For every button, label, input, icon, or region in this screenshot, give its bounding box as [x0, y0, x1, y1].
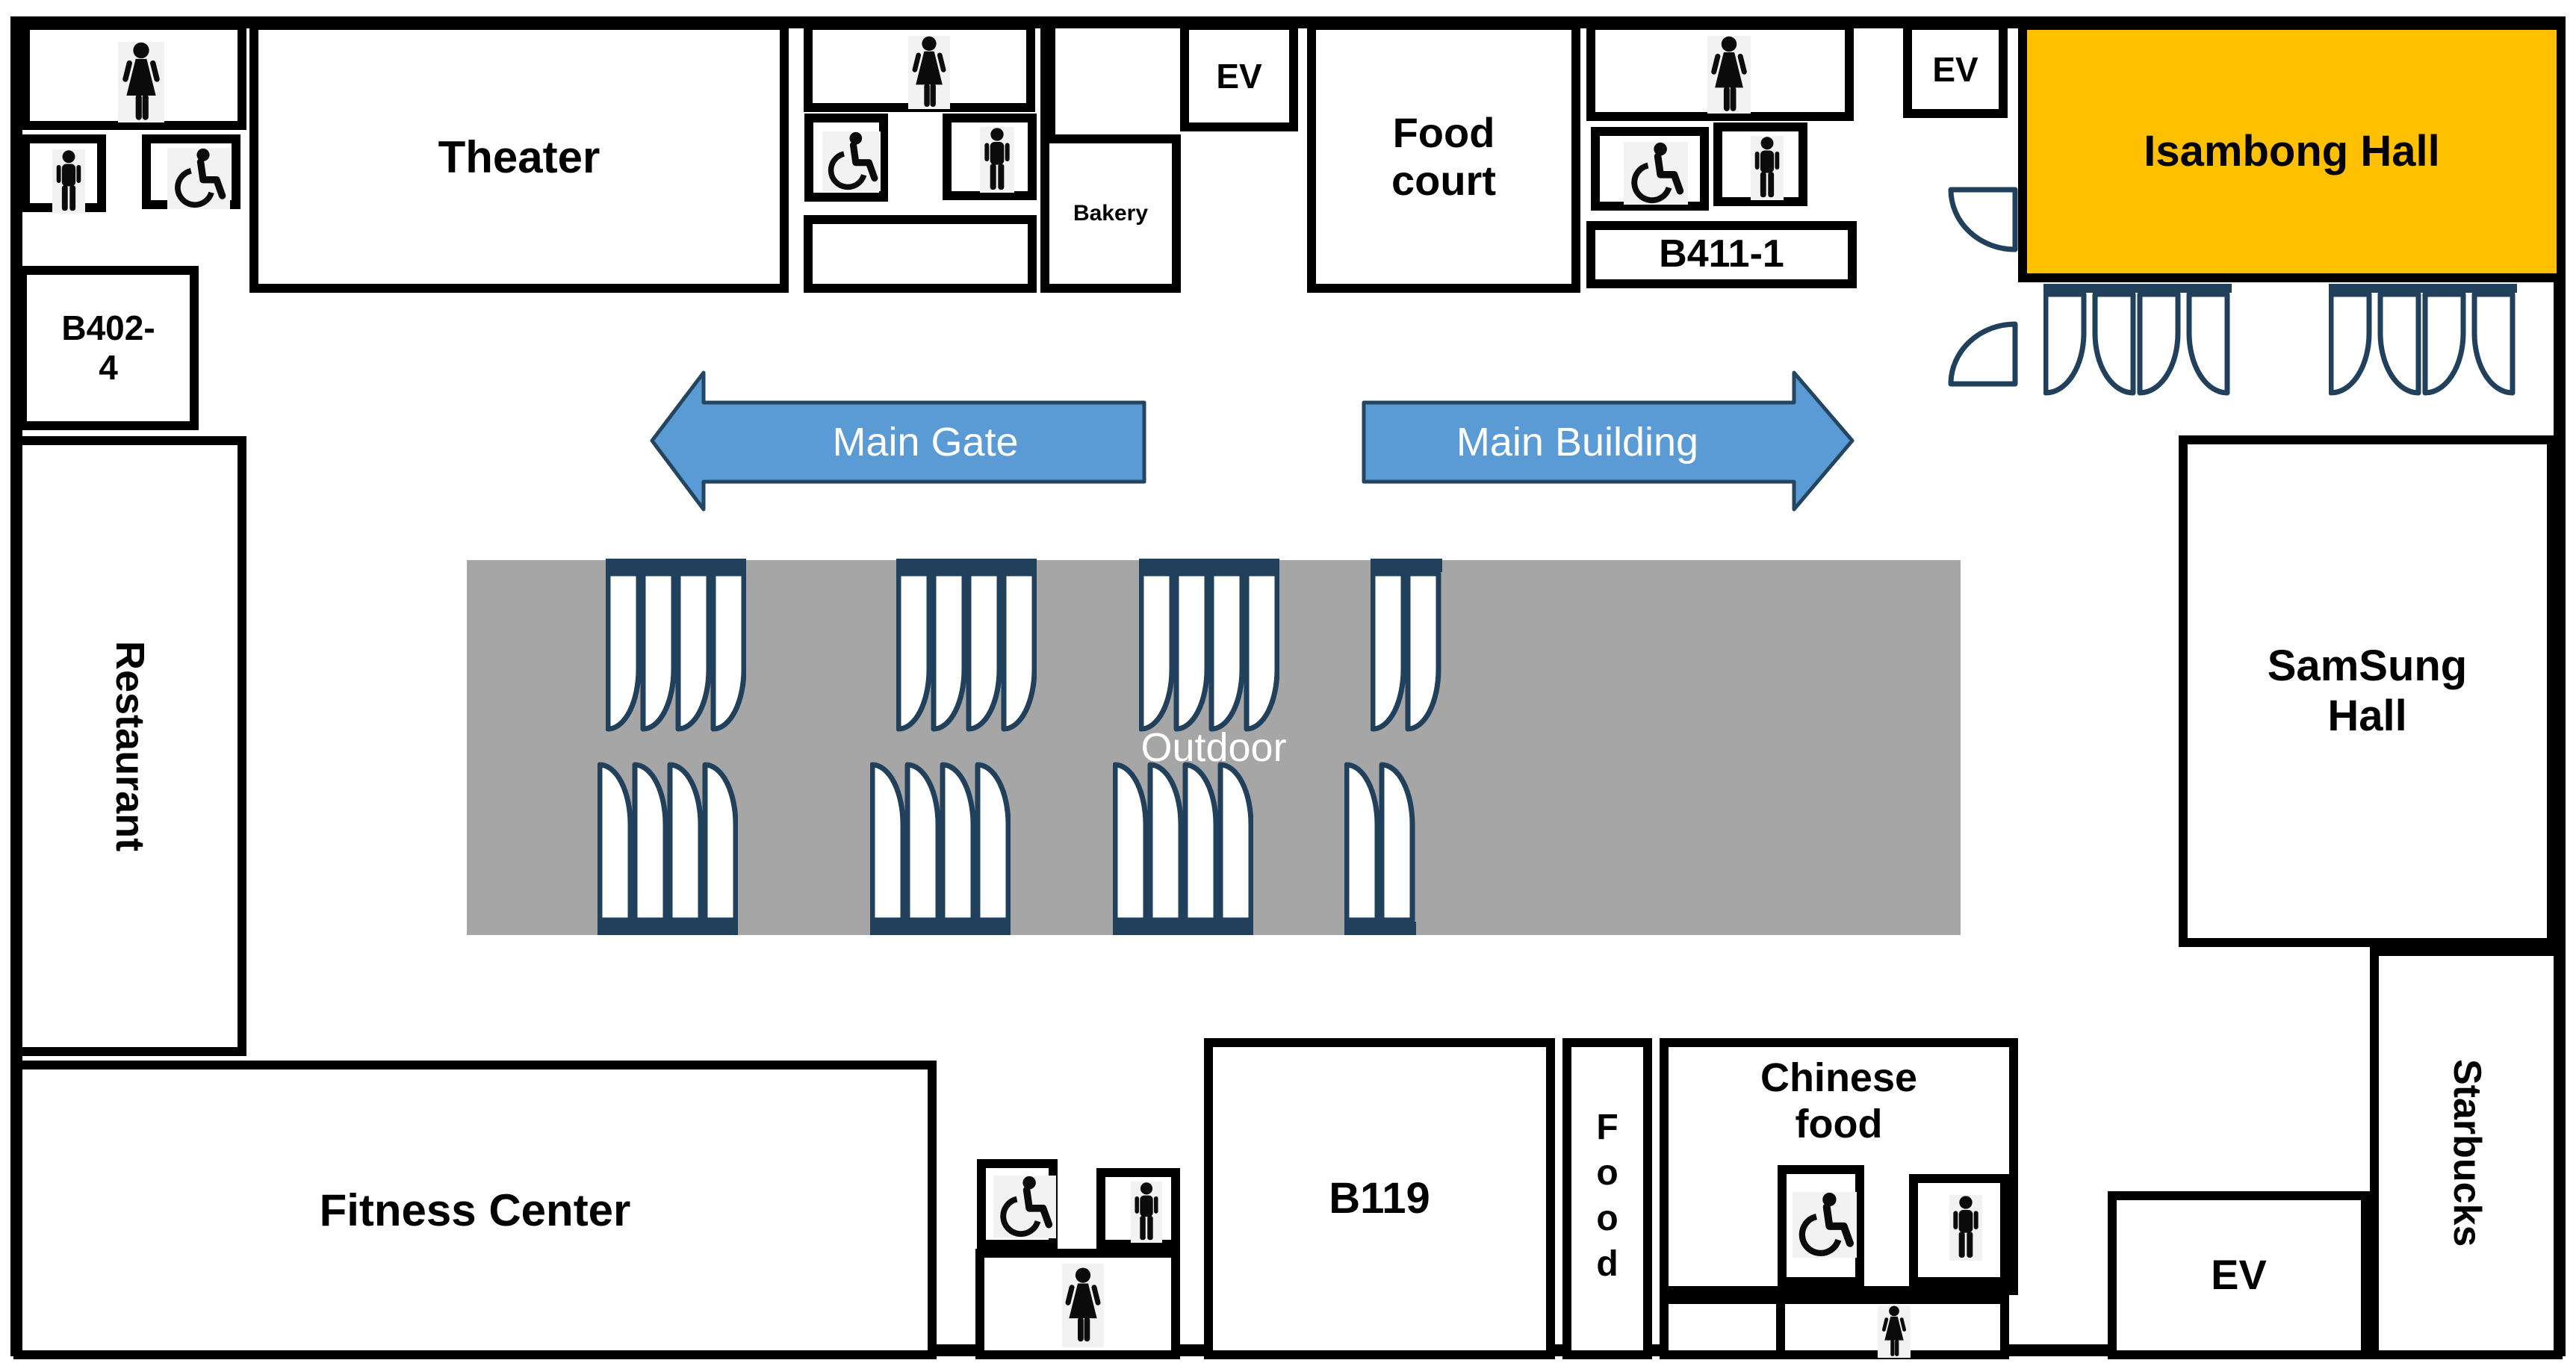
woman-restroom-icon: [118, 42, 164, 122]
wheelchair-accessible-icon: [1624, 142, 1688, 205]
man-restroom-icon: [52, 149, 85, 214]
room-restroom-men-nw: [21, 134, 106, 212]
room-restroom-accessible-s2: [1778, 1165, 1864, 1286]
room-restroom-women-s2: [1776, 1295, 2009, 1359]
room-label: Fitness Center: [320, 1185, 631, 1236]
woman-restroom-icon: [1707, 36, 1751, 114]
main-gate-label: Main Gate: [704, 403, 1147, 482]
sign-text: Main Building: [1456, 419, 1698, 465]
room-restroom-men-s2: [1909, 1174, 2009, 1286]
room-empty-n2: [804, 215, 1037, 293]
woman-restroom-icon: [908, 36, 950, 109]
room-restroom-women-n2: [804, 21, 1035, 112]
woman-restroom-icon: [1062, 1264, 1104, 1347]
wheelchair-accessible-icon: [167, 148, 230, 209]
door-swing-icon: [1344, 759, 1416, 935]
door-swing-icon: [1113, 759, 1253, 935]
door-swing-icon: [1371, 559, 1442, 735]
room-label: EV: [2211, 1251, 2267, 1299]
floor-plan: Theater B402- 4 Restaurant Bakery EV Foo…: [0, 0, 2576, 1366]
room-label: EV: [1932, 50, 1978, 90]
room-elevator-bottom: EV: [2108, 1191, 2370, 1359]
room-samsung-hall: SamSung Hall: [2179, 435, 2556, 947]
room-bakery: Bakery: [1040, 134, 1181, 293]
room-theater: Theater: [249, 21, 789, 293]
door-swing-icon: [870, 759, 1011, 935]
room-label: SamSung Hall: [2268, 642, 2468, 741]
door-swing-icon: [606, 559, 746, 735]
room-elevator-top-right: EV: [1903, 21, 2008, 118]
room-restroom-women-nw: [21, 21, 246, 130]
corridor-wall: [1040, 21, 1055, 137]
room-elevator-top: EV: [1180, 21, 1298, 131]
room-label: Food: [1586, 1108, 1627, 1290]
door-swing-icon: [2043, 284, 2232, 396]
door-swing-icon: [896, 559, 1037, 735]
room-restroom-accessible-s1: [977, 1159, 1058, 1249]
man-restroom-icon: [1949, 1195, 1982, 1261]
man-restroom-icon: [1131, 1182, 1162, 1243]
room-restroom-men-n3: [1713, 122, 1807, 206]
sign-text: Main Gate: [832, 419, 1018, 465]
door-swing-icon: [598, 759, 738, 935]
room-restroom-women-s1: [975, 1249, 1180, 1359]
door-swing-icon: [2329, 284, 2517, 396]
room-isambong-hall: Isambong Hall: [2018, 21, 2566, 282]
door-swing-icon: [1139, 559, 1279, 735]
room-restroom-men-n2: [943, 114, 1037, 200]
room-label: Bakery: [1073, 201, 1148, 227]
room-label: Food court: [1391, 109, 1496, 205]
room-label: B119: [1329, 1174, 1430, 1224]
room-restroom-women-n3: [1586, 21, 1854, 121]
room-restroom-men-s1: [1096, 1168, 1180, 1249]
room-food-court: Food court: [1307, 21, 1580, 293]
room-food-corridor: Food: [1562, 1038, 1652, 1359]
room-label: B402- 4: [61, 308, 155, 388]
woman-restroom-icon: [1878, 1306, 1911, 1358]
room-empty-s2: [1660, 1295, 1785, 1359]
wheelchair-accessible-icon: [822, 131, 881, 191]
room-restroom-accessible-n3: [1591, 127, 1709, 211]
room-starbucks: Starbucks: [2370, 947, 2563, 1359]
main-building-label: Main Building: [1361, 403, 1794, 482]
room-fitness-center: Fitness Center: [13, 1061, 937, 1359]
room-label: Restaurant: [107, 641, 153, 851]
man-restroom-icon: [980, 127, 1014, 193]
door-swing-icon: [1946, 187, 2018, 387]
room-label: EV: [1216, 57, 1261, 96]
wheelchair-accessible-icon: [993, 1176, 1056, 1238]
room-restaurant: Restaurant: [13, 436, 246, 1056]
room-restroom-accessible-nw: [142, 134, 240, 209]
room-label: Chinese food: [1760, 1055, 1917, 1147]
room-label: Starbucks: [2444, 1059, 2489, 1247]
room-b119: B119: [1204, 1038, 1555, 1359]
room-label: B411-1: [1659, 232, 1784, 277]
room-label: Theater: [438, 131, 600, 183]
room-label: Isambong Hall: [2144, 127, 2439, 177]
room-restroom-accessible-n2: [804, 114, 888, 202]
room-b411-1: B411-1: [1586, 221, 1857, 288]
man-restroom-icon: [1751, 136, 1784, 200]
room-b402-4: B402- 4: [18, 266, 199, 430]
wheelchair-accessible-icon: [1793, 1192, 1857, 1258]
